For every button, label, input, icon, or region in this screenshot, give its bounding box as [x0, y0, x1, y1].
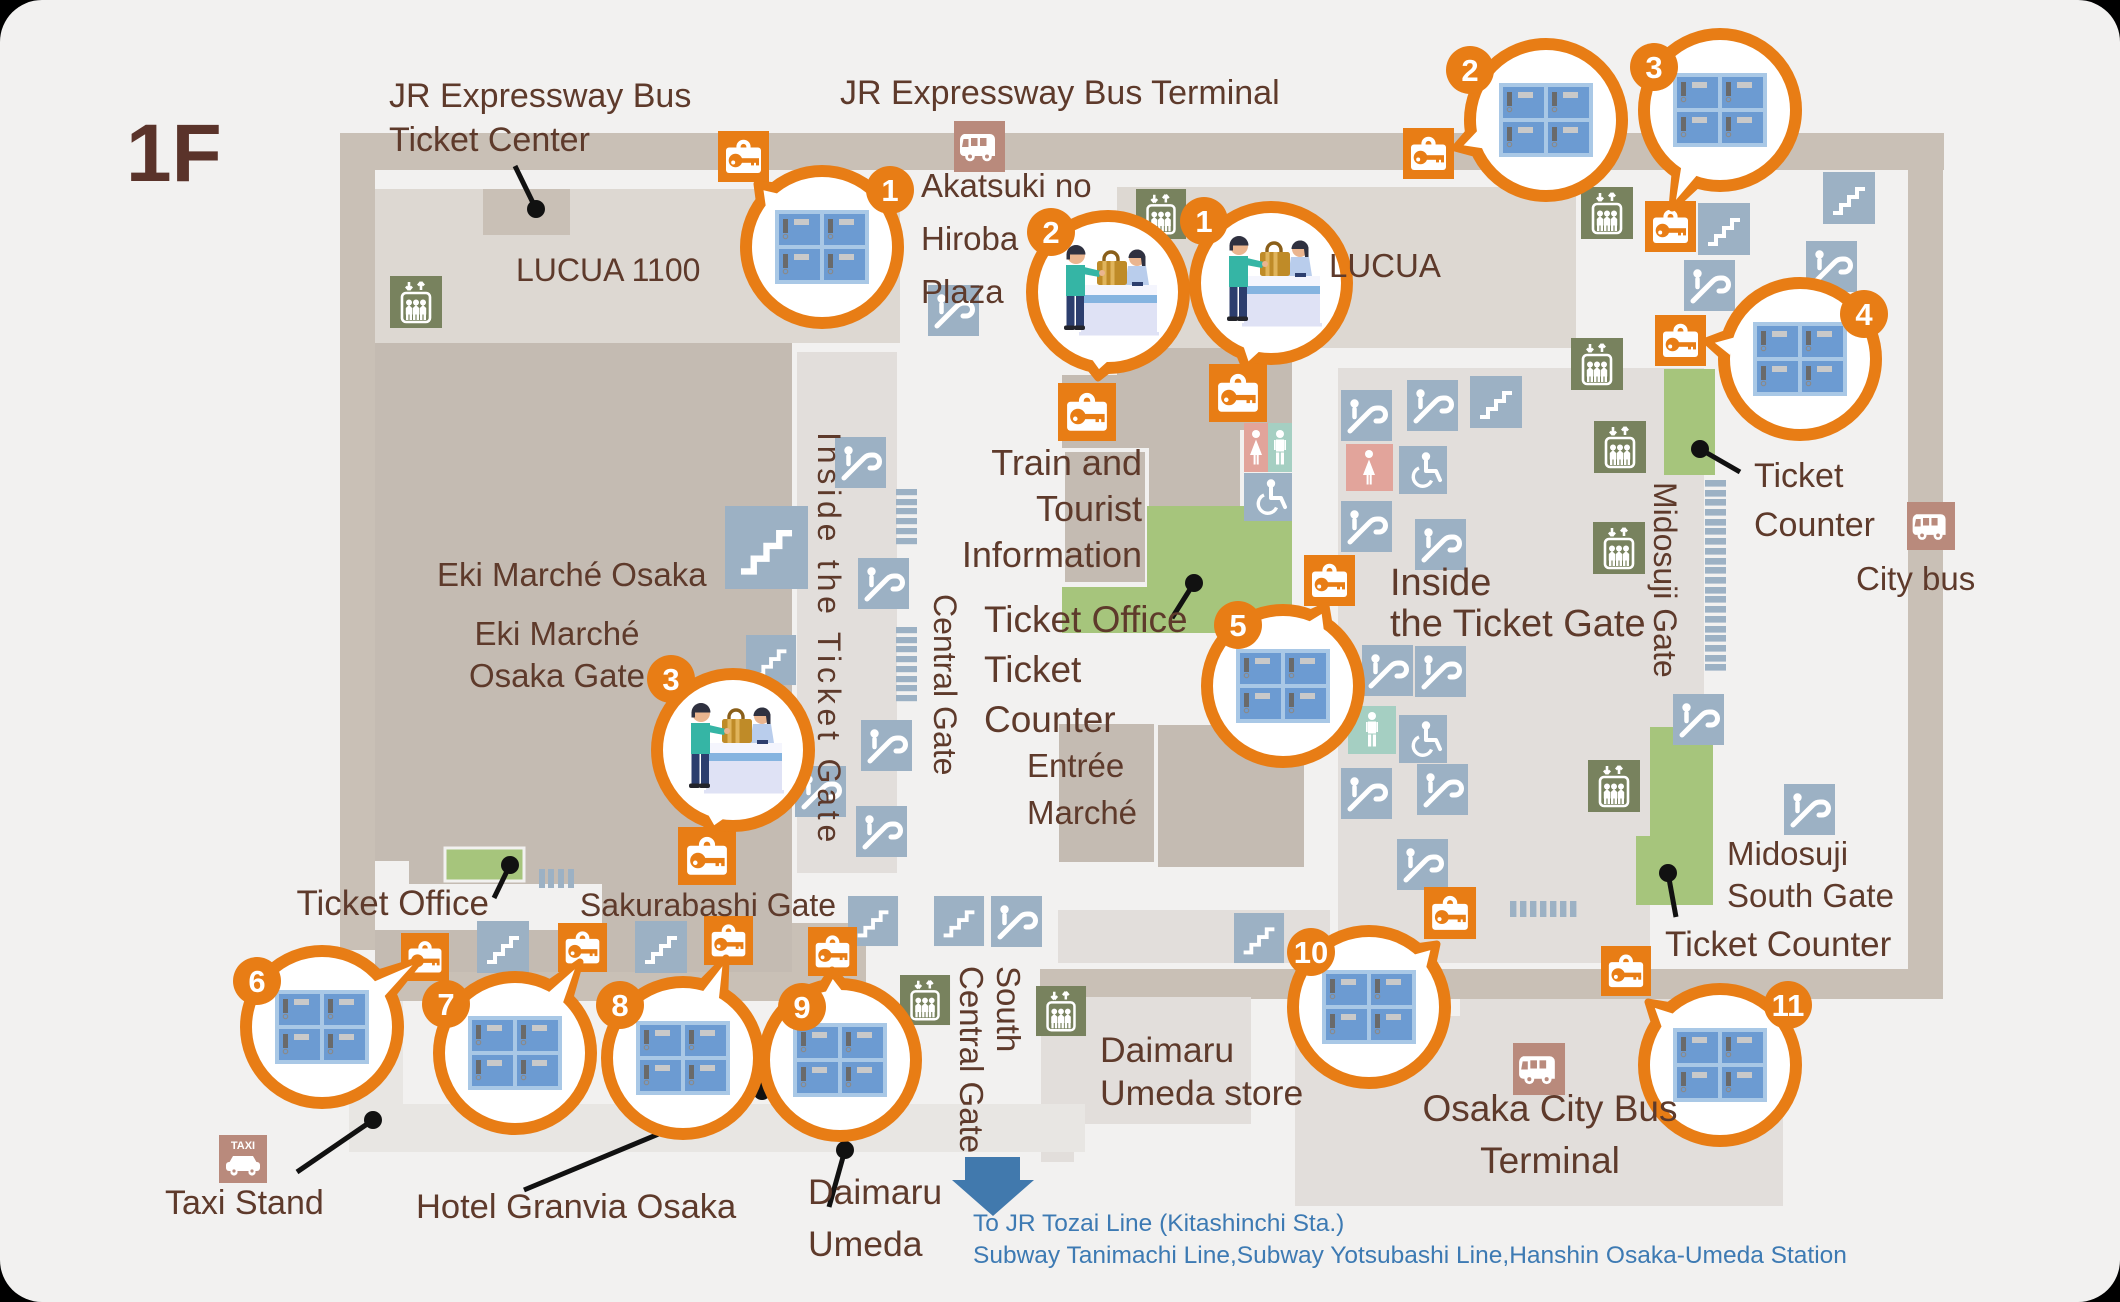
svg-text:Midosuji: Midosuji: [1727, 835, 1848, 872]
svg-text:3: 3: [1645, 50, 1662, 85]
svg-text:JR Expressway Bus Terminal: JR Expressway Bus Terminal: [840, 74, 1280, 112]
svg-text:Daimaru: Daimaru: [1100, 1030, 1234, 1070]
svg-text:Ticket: Ticket: [1754, 457, 1844, 495]
svg-text:South: South: [990, 966, 1027, 1052]
svg-text:Osaka Gate: Osaka Gate: [469, 657, 645, 694]
svg-text:4: 4: [1855, 297, 1873, 332]
svg-text:Counter: Counter: [984, 699, 1116, 740]
svg-text:Osaka City Bus: Osaka City Bus: [1423, 1088, 1678, 1129]
svg-text:Umeda: Umeda: [808, 1224, 923, 1264]
svg-text:10: 10: [1294, 935, 1328, 970]
svg-text:Umeda store: Umeda store: [1100, 1073, 1303, 1113]
svg-text:Ticket Center: Ticket Center: [389, 121, 590, 159]
svg-text:Train and: Train and: [991, 442, 1142, 483]
svg-text:Tourist: Tourist: [1036, 488, 1142, 529]
svg-text:8: 8: [611, 988, 628, 1023]
svg-text:Counter: Counter: [1754, 506, 1875, 544]
svg-text:1: 1: [881, 173, 898, 208]
svg-text:Entrée: Entrée: [1027, 747, 1124, 784]
svg-text:Information: Information: [962, 534, 1142, 575]
svg-text:Sakurabashi Gate: Sakurabashi Gate: [580, 887, 836, 923]
svg-text:LUCUA: LUCUA: [1329, 247, 1441, 284]
svg-text:South Gate: South Gate: [1727, 877, 1894, 914]
svg-text:Marché: Marché: [1027, 794, 1137, 831]
svg-text:6: 6: [248, 964, 265, 999]
svg-text:Inside: Inside: [1390, 562, 1491, 604]
svg-text:Ticket: Ticket: [984, 649, 1082, 690]
svg-text:Ticket Counter: Ticket Counter: [1665, 925, 1892, 964]
svg-text:Central Gate: Central Gate: [953, 966, 990, 1153]
svg-text:Daimaru: Daimaru: [808, 1172, 942, 1212]
svg-text:To JR Tozai Line (Kitashinchi: To JR Tozai Line (Kitashinchi Sta.): [973, 1210, 1344, 1237]
svg-text:2: 2: [1461, 53, 1478, 88]
svg-text:LUCUA 1100: LUCUA 1100: [516, 252, 700, 288]
svg-text:JR Expressway Bus: JR Expressway Bus: [389, 77, 691, 115]
svg-text:5: 5: [1229, 608, 1246, 643]
svg-text:Eki Marché: Eki Marché: [474, 615, 639, 652]
svg-text:Eki Marché Osaka: Eki Marché Osaka: [437, 556, 707, 593]
svg-text:Inside the Ticket Gate: Inside the Ticket Gate: [811, 432, 847, 847]
svg-text:Plaza: Plaza: [921, 273, 1004, 310]
svg-text:Terminal: Terminal: [1480, 1140, 1620, 1181]
svg-text:11: 11: [1772, 988, 1805, 1023]
svg-text:Hotel Granvia Osaka: Hotel Granvia Osaka: [416, 1188, 737, 1226]
svg-text:9: 9: [793, 990, 810, 1025]
svg-text:Midosuji Gate: Midosuji Gate: [1647, 482, 1683, 678]
svg-text:1: 1: [1195, 204, 1212, 239]
svg-text:City bus: City bus: [1856, 560, 1975, 597]
svg-text:Ticket Office: Ticket Office: [296, 884, 489, 923]
svg-text:the Ticket Gate: the Ticket Gate: [1390, 603, 1646, 645]
svg-text:7: 7: [437, 987, 454, 1022]
svg-text:Akatsuki no: Akatsuki no: [921, 167, 1092, 204]
svg-text:Hiroba: Hiroba: [921, 220, 1019, 257]
svg-text:Subway Tanimachi Line,Subway Y: Subway Tanimachi Line,Subway Yotsubashi …: [973, 1242, 1847, 1269]
svg-text:Central Gate: Central Gate: [927, 594, 963, 775]
svg-text:1F: 1F: [126, 108, 222, 199]
svg-text:3: 3: [662, 662, 679, 697]
svg-text:Taxi Stand: Taxi Stand: [165, 1184, 324, 1222]
svg-text:2: 2: [1042, 215, 1059, 250]
svg-text:Ticket Office: Ticket Office: [984, 599, 1188, 640]
